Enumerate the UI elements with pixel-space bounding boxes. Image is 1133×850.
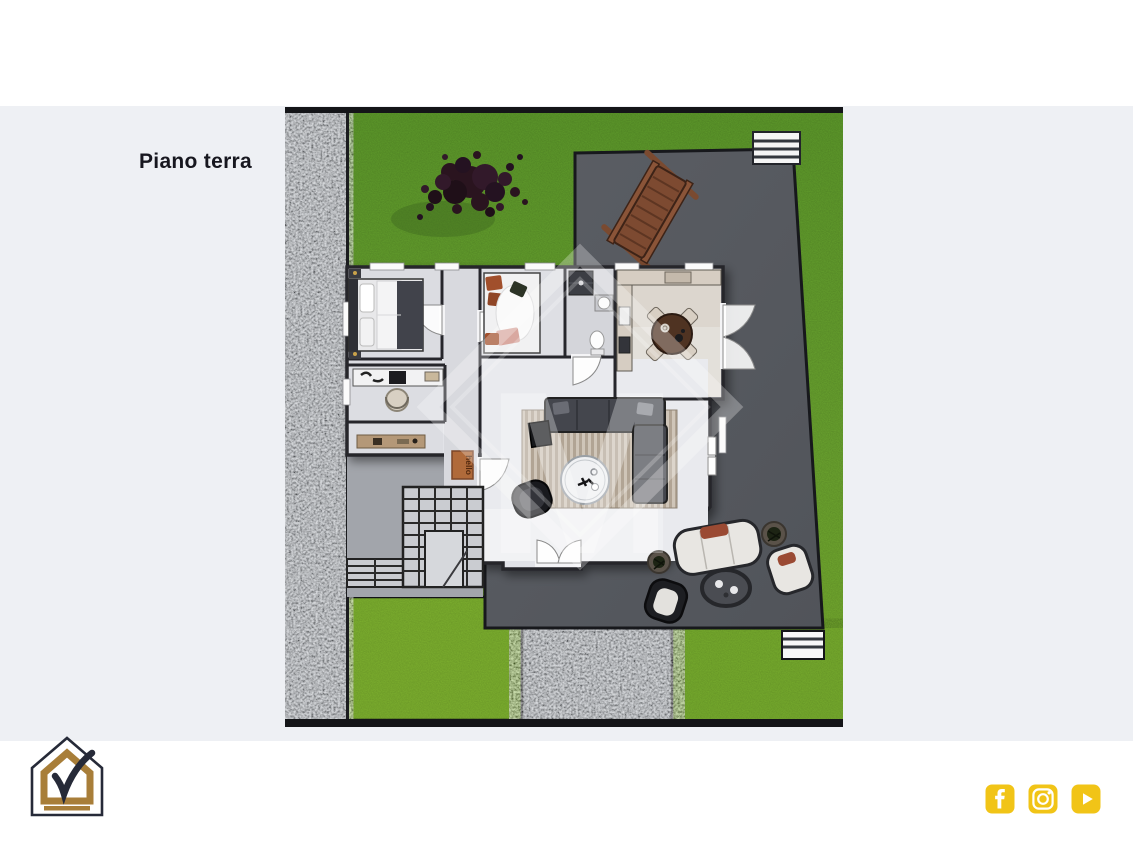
floor-plan-image: hello: [285, 107, 843, 727]
youtube-icon[interactable]: [1071, 784, 1101, 814]
terrace-steps-top: [753, 132, 800, 164]
social-links: [985, 784, 1101, 814]
instagram-icon[interactable]: [1028, 784, 1058, 814]
facebook-icon[interactable]: [985, 784, 1015, 814]
floor-plan-svg: hello: [285, 107, 843, 727]
house-checkmark-logo-icon: [28, 735, 106, 819]
agency-logo: [28, 735, 106, 819]
watermark-letter: M: [485, 344, 678, 603]
bed-1: [349, 269, 423, 359]
garden-steps-bottom: [782, 631, 824, 659]
page-title: Piano terra: [139, 150, 252, 174]
